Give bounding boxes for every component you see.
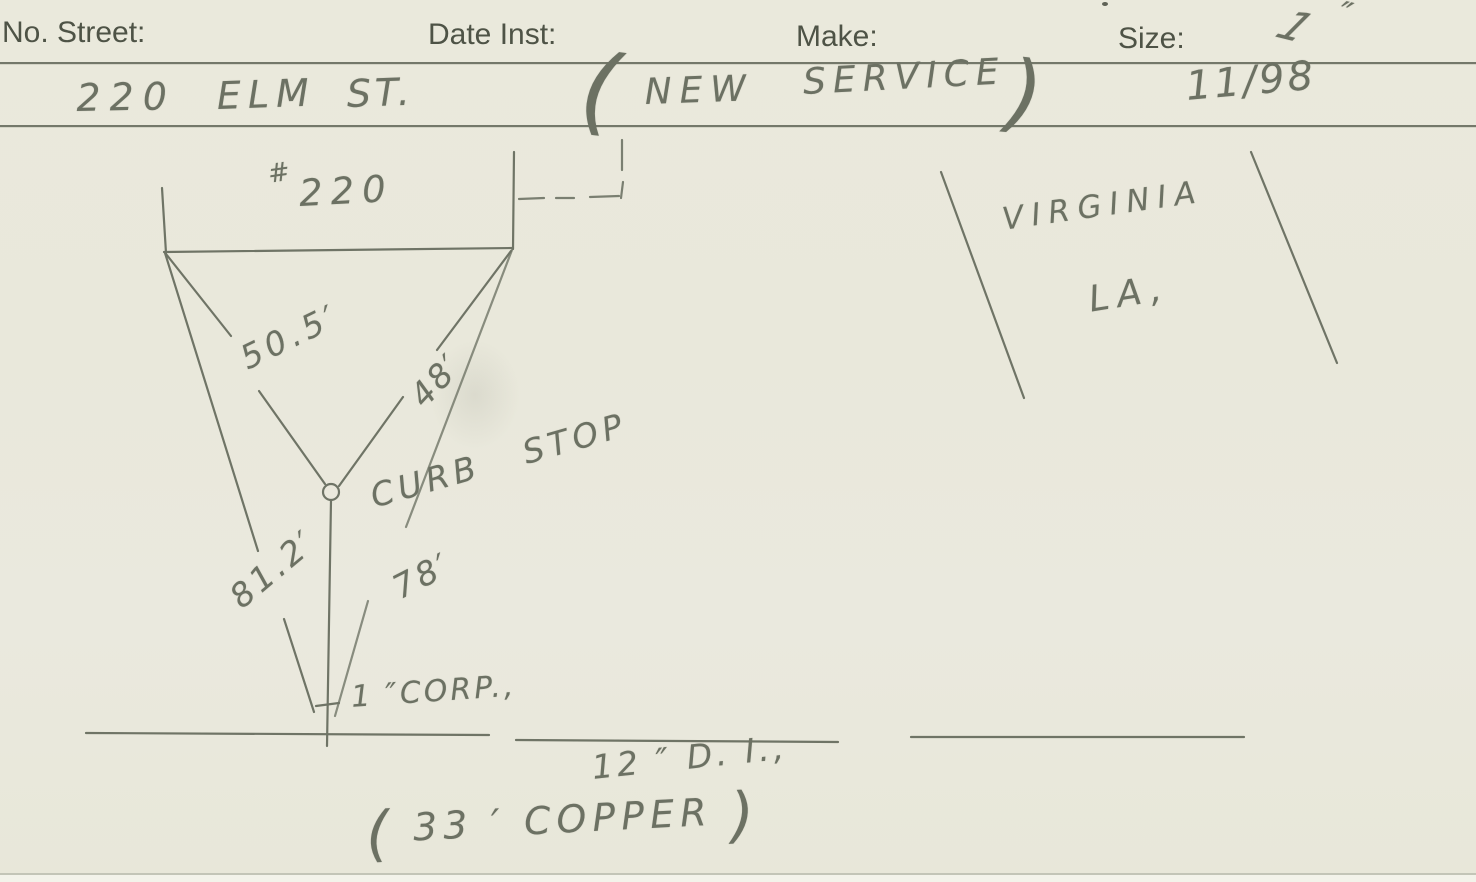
meter-dashed-lines [519,140,623,199]
main-line-segment-a [86,733,489,735]
house-front-line [164,248,513,252]
service-line-vertical [327,500,331,746]
curb-stop-symbol [323,484,339,500]
service-tap-card: No. Street: Date Inst: Make: Size: 1 ″ 2… [0,0,1476,882]
dim-line-50-5-a [166,254,231,336]
dim-line-50-5-b [259,391,325,484]
dim-line-81-2-a [165,253,258,551]
house-number-hash: # [266,157,292,190]
house-number-label: 220 [298,167,395,215]
copper-paren-close: ) [729,779,762,850]
street-slant-mark-right [1251,152,1337,363]
property-line-left [162,188,166,253]
dim-line-48-a [437,251,511,350]
copper-note-text: 33 ′ COPPER [412,790,714,850]
copper-paren-open: ( [364,798,397,869]
property-line-right [513,152,514,249]
dim-line-81-2-b [284,619,314,712]
corp-stop-tick [316,703,339,706]
